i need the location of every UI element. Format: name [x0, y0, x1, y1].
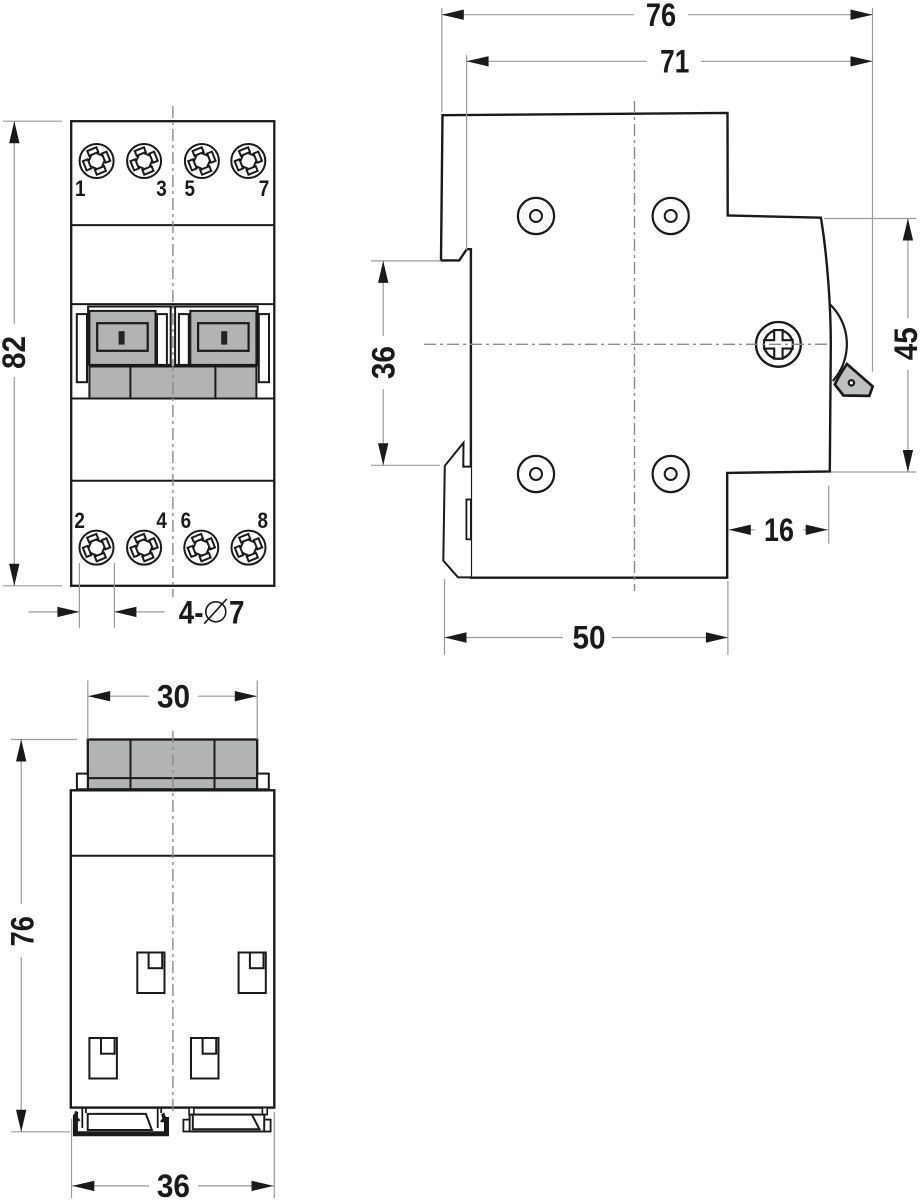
svg-text:3: 3: [156, 177, 167, 202]
svg-text:6: 6: [181, 508, 192, 533]
svg-text:50: 50: [572, 620, 605, 656]
svg-text:36: 36: [157, 1168, 190, 1200]
svg-text:8: 8: [258, 508, 269, 533]
svg-text:45: 45: [888, 327, 923, 360]
svg-text:76: 76: [5, 916, 41, 946]
svg-text:1: 1: [75, 177, 86, 202]
svg-text:7: 7: [229, 596, 244, 631]
svg-text:76: 76: [646, 0, 676, 33]
svg-text:5: 5: [185, 177, 196, 202]
svg-text:4: 4: [156, 508, 167, 533]
svg-text:30: 30: [157, 678, 190, 714]
svg-text:16: 16: [764, 513, 794, 549]
svg-text:2: 2: [74, 508, 85, 533]
svg-text:36: 36: [365, 346, 401, 379]
svg-text:82: 82: [0, 336, 32, 369]
svg-text:4-: 4-: [179, 596, 204, 631]
svg-text:7: 7: [259, 177, 270, 202]
svg-text:71: 71: [660, 45, 689, 80]
